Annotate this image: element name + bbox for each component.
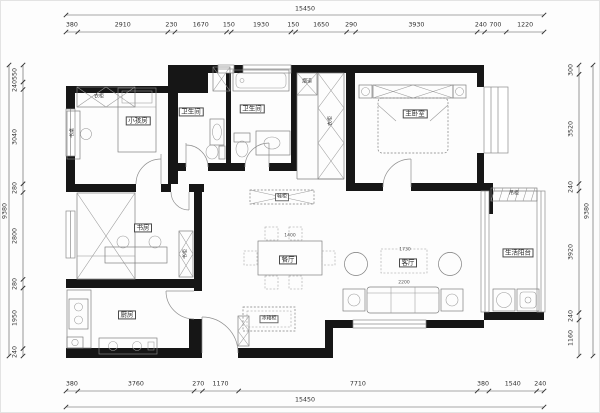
- door-master: [383, 159, 411, 187]
- door-bath1: [186, 143, 208, 167]
- dim-label: 380: [477, 381, 489, 388]
- desk-study: [105, 236, 167, 263]
- dim-label: 1220: [517, 22, 533, 29]
- dim-label: 9380: [2, 202, 9, 218]
- dim-label: 1950: [12, 310, 19, 326]
- dim-label: 240: [12, 80, 19, 92]
- dim-label: 3040: [12, 129, 19, 145]
- room-label-bath2: 卫生间: [240, 104, 265, 113]
- dim-label: 240: [568, 310, 575, 322]
- dim-label: 280: [12, 278, 19, 290]
- sofa-living: [367, 287, 439, 313]
- dim-label: 240: [12, 346, 19, 358]
- dim-label: 270: [192, 381, 204, 388]
- room-label-kids: 小孩房: [126, 116, 151, 125]
- dim-label: 240: [475, 22, 487, 29]
- toilet-bath2: [234, 133, 250, 157]
- nightstand-right: [453, 85, 466, 98]
- dim-label: 3930: [408, 22, 424, 29]
- side-table-right: [441, 289, 463, 311]
- walls: [66, 65, 544, 358]
- bathtub-bath2: [233, 70, 289, 91]
- room-label-living: 客厅: [399, 258, 417, 267]
- dim-label: 1650: [313, 22, 329, 29]
- windows: [66, 65, 545, 328]
- dim-label: 550: [12, 68, 19, 80]
- label-wardrobe-master: 衣柜: [328, 116, 334, 126]
- room-label-master: 主卧室: [403, 109, 428, 118]
- toilet-bath1: [206, 145, 225, 159]
- counter-kitchen: [67, 290, 91, 348]
- dim-label: 230: [165, 22, 177, 29]
- dim-label: 1160: [568, 330, 575, 346]
- vanity-bath2: [256, 131, 290, 155]
- dim-label: 150: [223, 22, 235, 29]
- door-kitchen: [166, 291, 194, 319]
- bed-master: [378, 98, 448, 153]
- dim-sofa: 2200: [398, 282, 409, 287]
- armchair-left: [345, 252, 368, 275]
- dim-label: 290: [345, 22, 357, 29]
- headboard-master: [373, 85, 453, 98]
- door-study: [171, 192, 189, 210]
- label-flue: 烟道: [302, 79, 312, 85]
- dim-label: 3520: [568, 121, 575, 137]
- dim-label: 280: [12, 182, 19, 194]
- wardrobe-master-box: [297, 73, 344, 179]
- dim-dining-table: 1400: [284, 235, 295, 240]
- armchair-right: [439, 252, 462, 275]
- dim-label: 15450: [295, 6, 315, 13]
- dim-label: 240: [568, 181, 575, 193]
- side-table-left: [343, 289, 365, 311]
- dim-label: 150: [287, 22, 299, 29]
- dim-label: 1670: [193, 22, 209, 29]
- label-shoe-cabinet: 鞋柜: [275, 193, 289, 201]
- floorplan-drawing: [1, 1, 600, 413]
- floorplan-canvas: 小孩房 卫生间 卫生间 主卧室 书房 餐厅 客厅 厨房 生活阳台 衣柜 书桌 书…: [0, 0, 600, 413]
- dim-label: 7710: [350, 381, 366, 388]
- dim-label: 15450: [295, 397, 315, 404]
- nightstand-left: [359, 85, 372, 98]
- label-hanging-cabinet: 吊柜: [509, 191, 519, 197]
- dim-label: 700: [489, 22, 501, 29]
- bay-window: [484, 87, 508, 153]
- label-wardrobe-kids: 衣柜: [94, 94, 104, 100]
- door-entry: [202, 317, 238, 353]
- vanity-bath1: [210, 119, 224, 145]
- label-desk-kids: 书桌: [70, 128, 76, 138]
- dim-label: 2910: [115, 22, 131, 29]
- dim-label: 380: [66, 22, 78, 29]
- dim-label: 1930: [253, 22, 269, 29]
- dim-label: 1540: [505, 381, 521, 388]
- dim-label: 380: [66, 381, 78, 388]
- drain-kitchen: [67, 337, 83, 348]
- dim-label: 2800: [12, 228, 19, 244]
- laundry-sink-balcony: [517, 289, 539, 311]
- door-kids: [136, 154, 161, 184]
- label-fridge-cabinet: 冰箱柜: [259, 315, 278, 323]
- washing-machine-balcony: [493, 289, 515, 311]
- dim-label: 240: [534, 381, 546, 388]
- room-label-dining: 餐厅: [279, 255, 297, 264]
- floor-drain-dot: [203, 81, 207, 85]
- dim-living-width: 1730: [399, 249, 410, 254]
- dim-label: 1170: [213, 381, 229, 388]
- dim-label: 9380: [584, 202, 591, 218]
- room-label-study: 书房: [134, 223, 152, 232]
- furniture: [67, 67, 539, 354]
- tatami-study: [77, 193, 135, 279]
- dim-label: 300: [568, 64, 575, 76]
- dim-label: 3760: [128, 381, 144, 388]
- room-label-balcony: 生活阳台: [503, 248, 534, 257]
- dim-label: 3920: [568, 244, 575, 260]
- room-label-kitchen: 厨房: [118, 310, 136, 319]
- room-label-bath1: 卫生间: [179, 107, 204, 116]
- label-bookcase-study: 书柜: [183, 249, 189, 259]
